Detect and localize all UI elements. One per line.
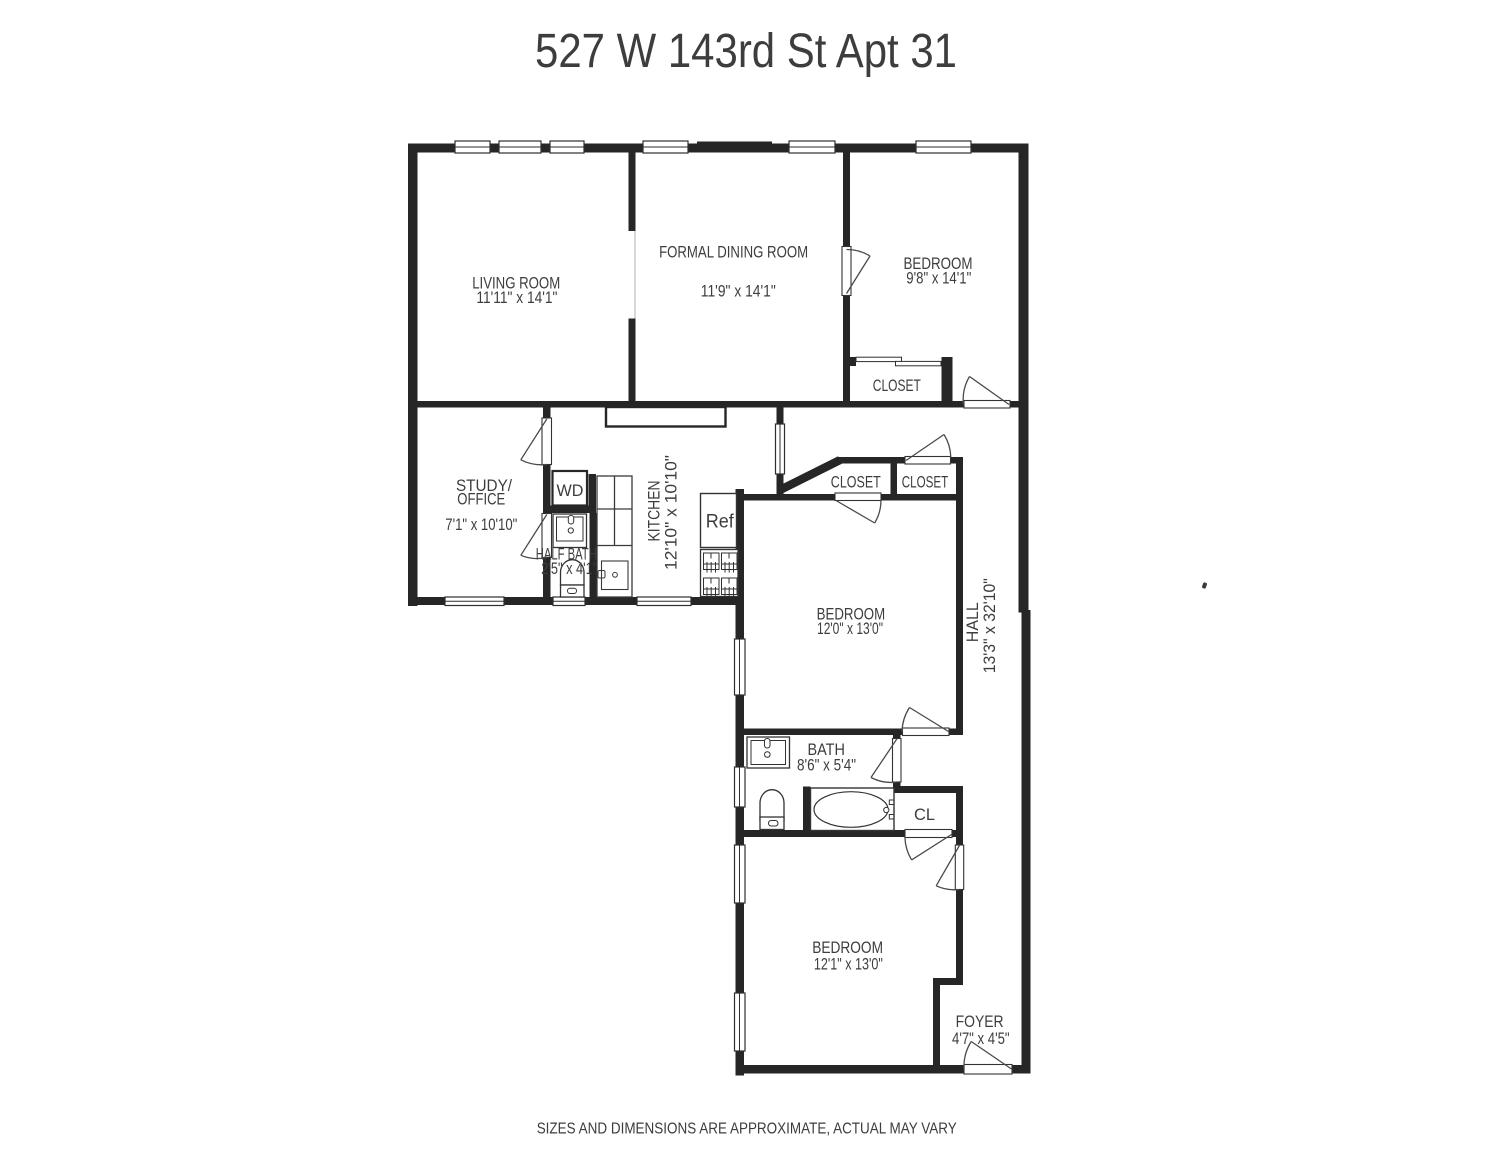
svg-text:2'5" x 4'1": 2'5" x 4'1" — [541, 559, 597, 578]
svg-text:12'10" x 10'10": 12'10" x 10'10" — [662, 455, 681, 570]
svg-text:12'1" x 13'0": 12'1" x 13'0" — [814, 955, 883, 974]
svg-text:13'3" x 32'10": 13'3" x 32'10" — [980, 578, 999, 673]
svg-text:SIZES AND DIMENSIONS ARE APPRO: SIZES AND DIMENSIONS ARE APPROXIMATE, AC… — [537, 1121, 957, 1138]
svg-text:CL: CL — [914, 805, 935, 824]
svg-text:Ref: Ref — [706, 512, 735, 533]
svg-text:8'6" x 5'4": 8'6" x 5'4" — [797, 756, 856, 775]
svg-text:11'11" x 14'1": 11'11" x 14'1" — [476, 288, 557, 307]
svg-text:FORMAL DINING ROOM: FORMAL DINING ROOM — [659, 243, 808, 262]
svg-text:9'8" x 14'1": 9'8" x 14'1" — [906, 269, 971, 288]
svg-text:CLOSET: CLOSET — [902, 473, 949, 492]
svg-text:WD: WD — [557, 482, 584, 500]
svg-text:CLOSET: CLOSET — [873, 376, 921, 395]
svg-text:OFFICE: OFFICE — [457, 490, 505, 509]
svg-text:4'7" x 4'5": 4'7" x 4'5" — [952, 1029, 1010, 1048]
svg-text:527 W 143rd St Apt 31: 527 W 143rd St Apt 31 — [535, 25, 957, 78]
svg-text:12'0" x 13'0": 12'0" x 13'0" — [817, 619, 883, 638]
svg-text:11'9" x 14'1": 11'9" x 14'1" — [701, 282, 776, 301]
svg-text:7'1" x 10'10": 7'1" x 10'10" — [445, 515, 517, 534]
svg-text:CLOSET: CLOSET — [831, 473, 881, 492]
